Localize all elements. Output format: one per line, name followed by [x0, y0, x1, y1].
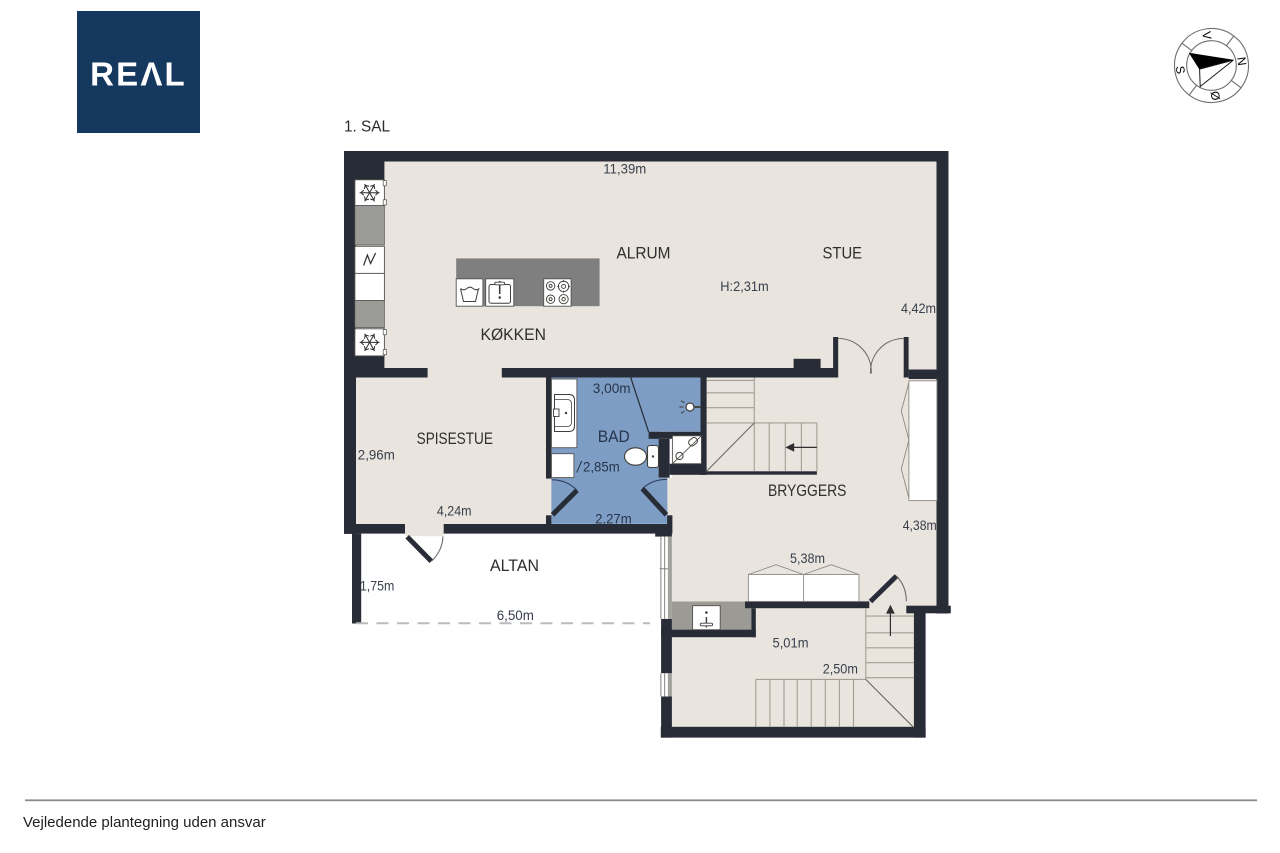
svg-text:5,38m: 5,38m	[790, 550, 825, 566]
svg-text:2,50m: 2,50m	[823, 660, 858, 676]
svg-text:6,50m: 6,50m	[497, 607, 534, 623]
svg-text:5,01m: 5,01m	[773, 634, 809, 650]
svg-text:4,42m: 4,42m	[901, 300, 936, 316]
svg-text:ALRUM: ALRUM	[617, 244, 671, 263]
svg-text:11,39m: 11,39m	[603, 161, 646, 177]
svg-text:STUE: STUE	[823, 244, 863, 263]
svg-text:KØKKEN: KØKKEN	[481, 325, 546, 344]
svg-text:ALTAN: ALTAN	[490, 556, 539, 575]
svg-text:2,96m: 2,96m	[358, 447, 395, 463]
svg-text:2,27m: 2,27m	[595, 511, 632, 527]
svg-text:BRYGGERS: BRYGGERS	[768, 481, 847, 500]
svg-text:Ø: Ø	[1208, 90, 1223, 101]
svg-text:REΛL: REΛL	[90, 56, 187, 93]
svg-text:2,85m: 2,85m	[583, 459, 620, 475]
svg-text:4,38m: 4,38m	[903, 517, 937, 533]
svg-text:3,00m: 3,00m	[593, 380, 631, 396]
svg-text:4,24m: 4,24m	[437, 502, 472, 518]
svg-text:Vejledende plantegning uden an: Vejledende plantegning uden ansvar	[23, 814, 266, 831]
svg-text:SPISESTUE: SPISESTUE	[417, 429, 493, 448]
svg-text:BAD: BAD	[598, 427, 630, 446]
svg-text:H:2,31m: H:2,31m	[720, 278, 769, 294]
svg-text:1,75m: 1,75m	[360, 577, 395, 593]
svg-text:1. SAL: 1. SAL	[344, 119, 390, 136]
